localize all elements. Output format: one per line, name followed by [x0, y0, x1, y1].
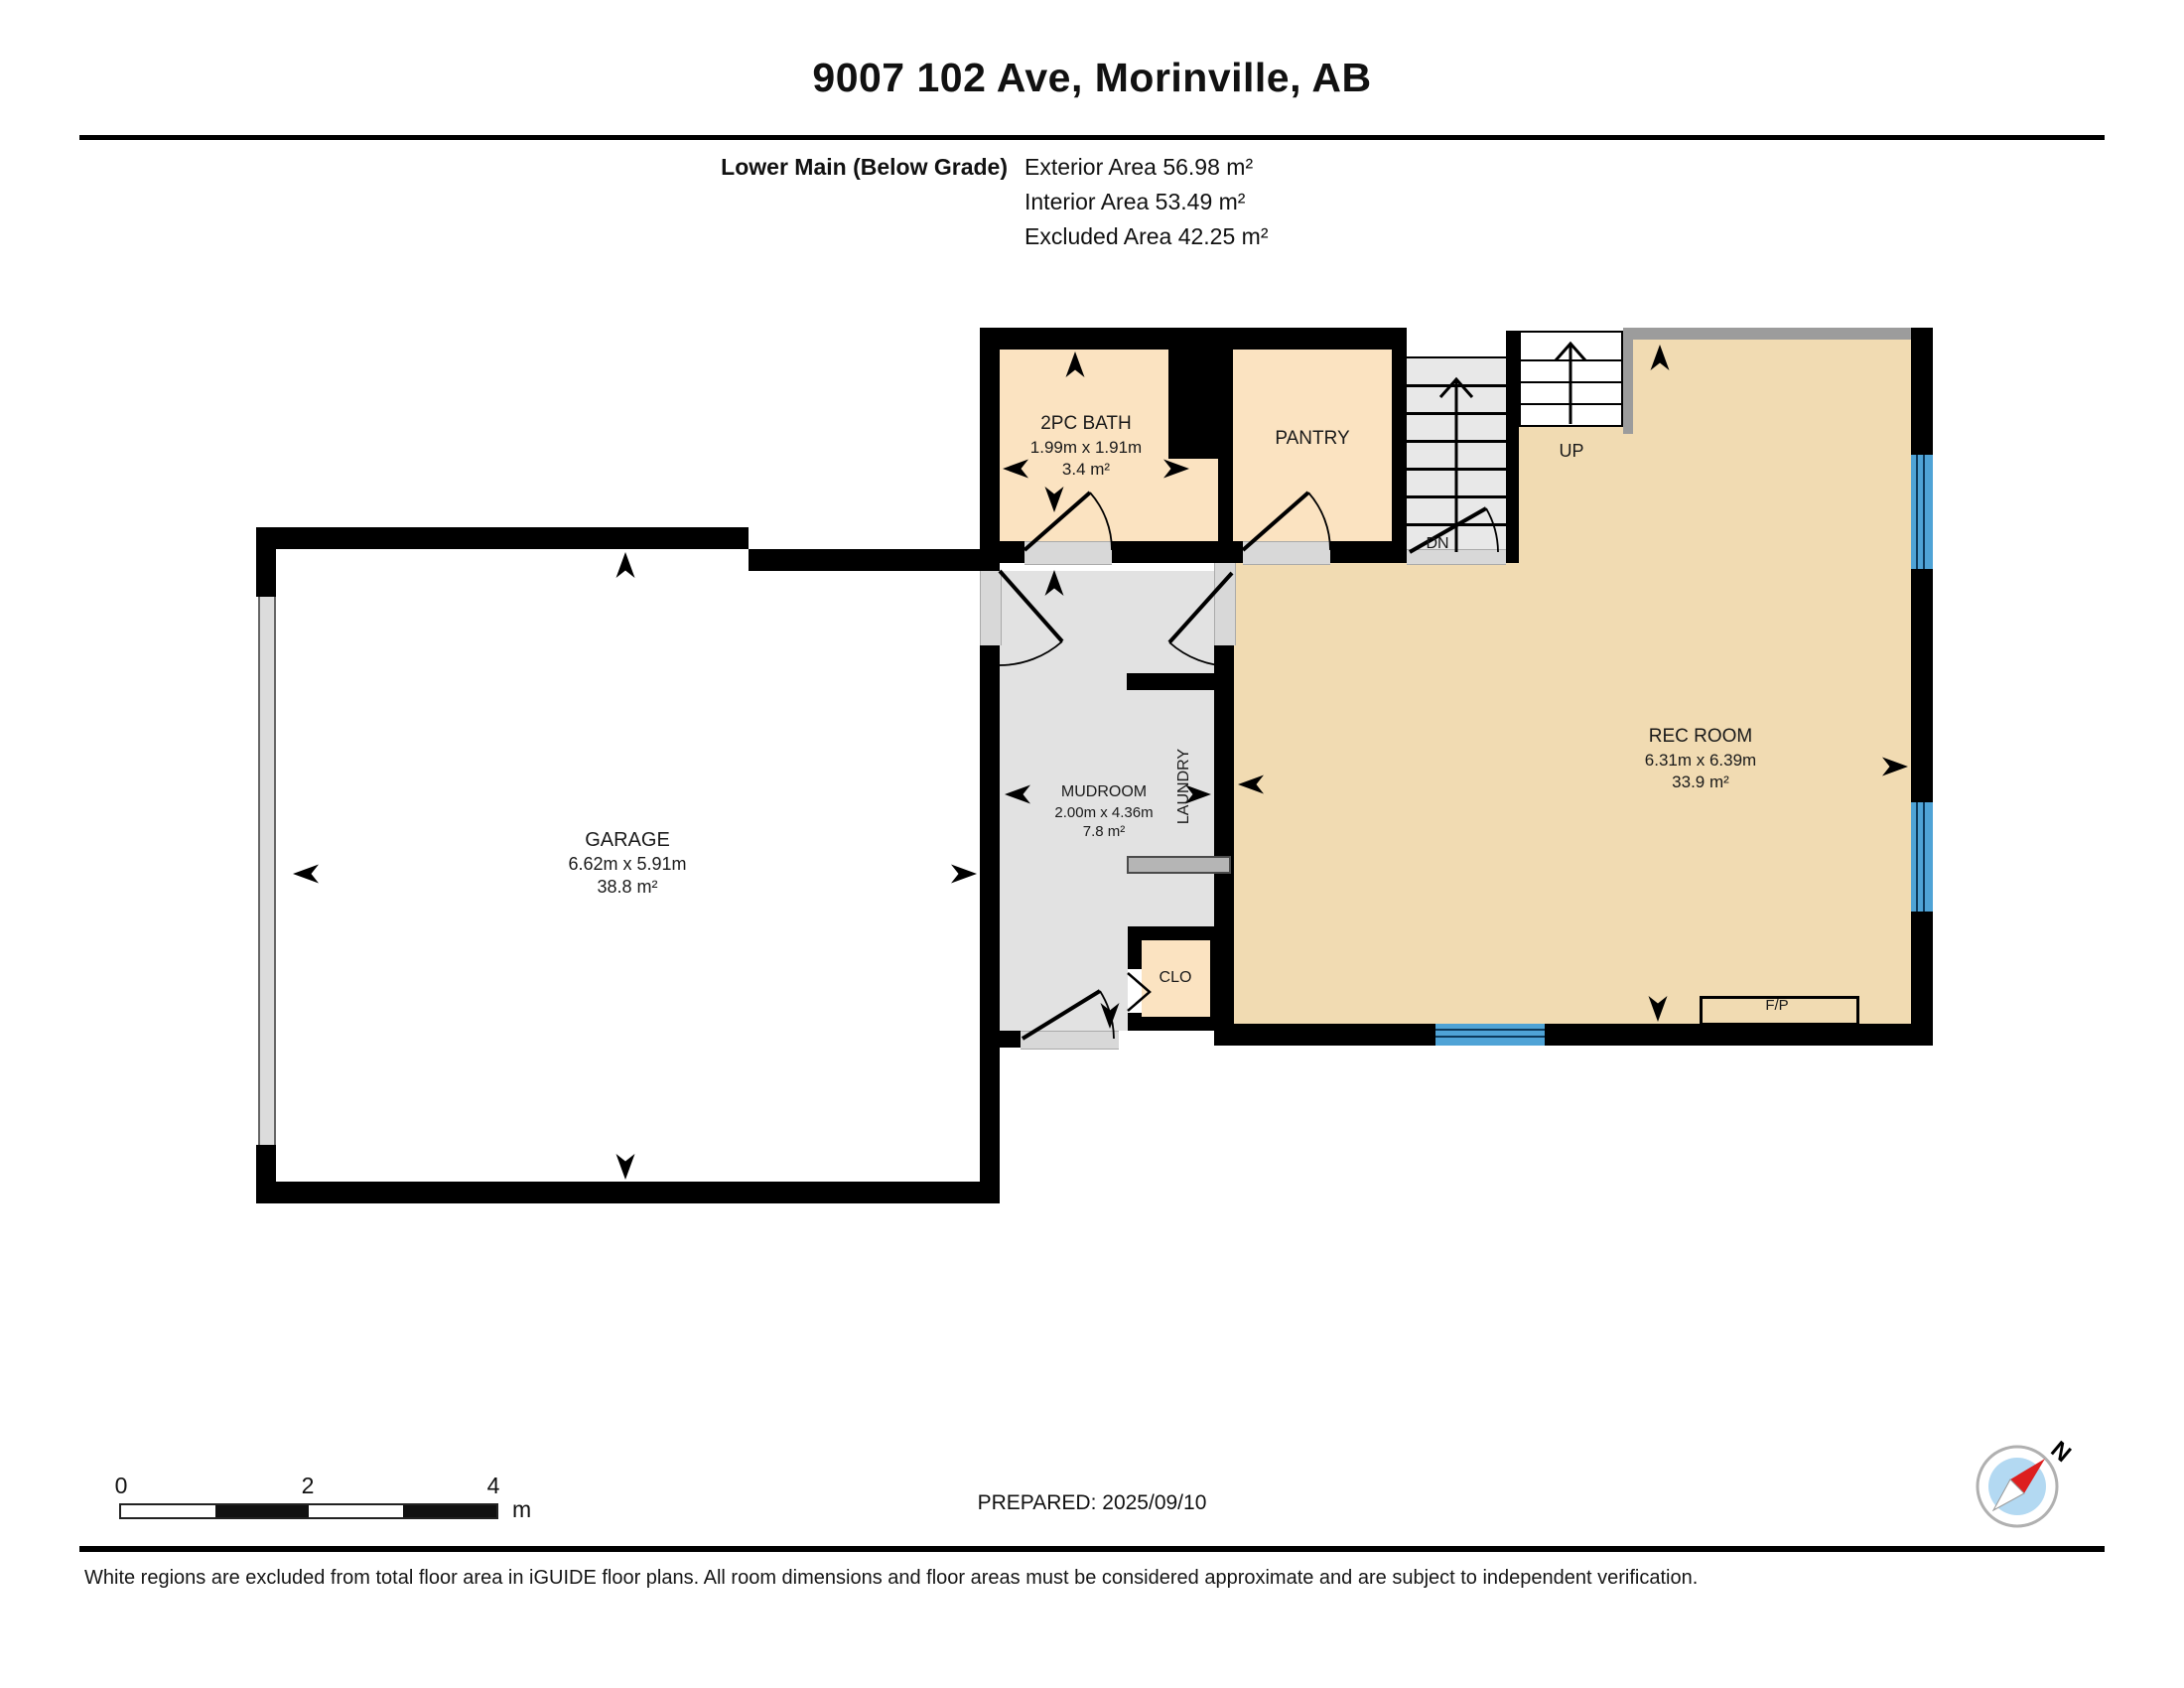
bath-dims: 1.99m x 1.91m [1030, 437, 1142, 459]
scale-tick-4: 4 [487, 1473, 500, 1499]
scale-unit-label: m [512, 1496, 531, 1523]
pantry-label: PANTRY [1275, 427, 1349, 452]
rec-room-label: REC ROOM 6.31m x 6.39m 33.9 m² [1645, 725, 1756, 793]
measure-arrow-left [1238, 775, 1264, 794]
scale-segment [121, 1505, 215, 1517]
scale-tick-0: 0 [115, 1473, 128, 1499]
mudroom-area: 7.8 m² [1054, 822, 1153, 842]
mudroom-label: MUDROOM 2.00m x 4.36m 7.8 m² [1054, 782, 1153, 842]
bath-area: 3.4 m² [1030, 459, 1142, 481]
measure-arrow-up [1045, 570, 1064, 596]
footer-disclaimer: White regions are excluded from total fl… [84, 1567, 1698, 1590]
bath-door-arc [1090, 492, 1112, 550]
rec-mudroom-door-leaf [1169, 573, 1232, 642]
laundry-label: LAUNDRY [1175, 749, 1193, 824]
rec-room-name: REC ROOM [1645, 725, 1756, 750]
rec-room-dims: 6.31m x 6.39m [1645, 750, 1756, 772]
measure-arrow-left [1005, 785, 1030, 804]
measure-arrow-right [1882, 758, 1908, 776]
garage-dims: 6.62m x 5.91m [568, 853, 686, 876]
stairs-down-label: DN [1426, 534, 1448, 555]
bath-name: 2PC BATH [1030, 412, 1142, 437]
garage-mudroom-door-arc [1000, 641, 1062, 665]
mudroom-dims: 2.00m x 4.36m [1054, 803, 1153, 823]
scale-segment [215, 1505, 310, 1517]
measure-arrow-up [616, 552, 635, 578]
door-leaves [1000, 492, 1486, 1039]
footer-divider [79, 1546, 2105, 1552]
scale-tick-2: 2 [302, 1473, 315, 1499]
measure-arrow-down [616, 1154, 635, 1180]
garage-area: 38.8 m² [568, 876, 686, 899]
floor-plan-page: 9007 102 Ave, Morinville, AB Lower Main … [0, 0, 2184, 1688]
stairs-door-arc [1486, 508, 1498, 552]
measure-arrow-down [1649, 996, 1668, 1022]
door-arcs [1000, 492, 1498, 1039]
measure-arrow-up [1651, 345, 1670, 370]
measure-arrow-left [1003, 460, 1028, 479]
rec-mudroom-door-arc [1169, 642, 1232, 666]
garage-label: GARAGE 6.62m x 5.91m 38.8 m² [568, 827, 686, 900]
compass-icon: N [1961, 1430, 2080, 1549]
mudroom-exit-door-leaf [1023, 991, 1100, 1039]
mudroom-name: MUDROOM [1054, 782, 1153, 803]
closet-bifold-door [1128, 973, 1150, 1011]
pantry-door-arc [1308, 492, 1330, 550]
scale-bar [119, 1503, 498, 1519]
scale-segment [403, 1505, 497, 1517]
scale-segment [309, 1505, 403, 1517]
measure-arrow-right [951, 865, 977, 884]
rec-room-area: 33.9 m² [1645, 772, 1756, 793]
pantry-door-leaf [1243, 492, 1308, 550]
measure-arrow-right [1163, 460, 1189, 479]
garage-name: GARAGE [568, 827, 686, 853]
closet-label: CLO [1160, 968, 1192, 989]
prepared-date-label: PREPARED: 2025/09/10 [978, 1491, 1207, 1515]
bath-label: 2PC BATH 1.99m x 1.91m 3.4 m² [1030, 412, 1142, 481]
measure-arrow-down [1101, 1003, 1120, 1029]
measure-arrow-up [1066, 352, 1085, 377]
fireplace-label: F/P [1765, 996, 1788, 1016]
plan-linework-layer [0, 0, 2184, 1688]
measure-arrow-left [293, 865, 319, 884]
stairs-up-label: UP [1559, 440, 1583, 463]
measure-arrow-down [1045, 487, 1064, 512]
